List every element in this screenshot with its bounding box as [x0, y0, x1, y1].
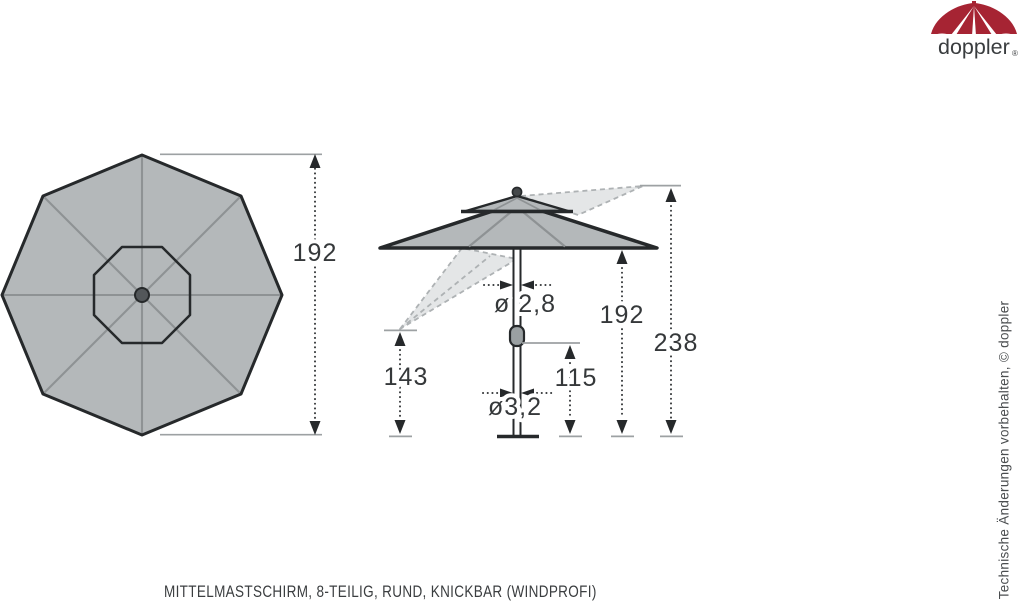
brand-name: doppler: [938, 35, 1010, 59]
doppler-logo: doppler ®: [926, 1, 1020, 59]
technical-drawing-page: 192: [0, 0, 1020, 605]
dim-label-pole-upper: ø 2,8: [494, 290, 556, 318]
dim-label-crank-height: 115: [555, 364, 598, 392]
umbrella-diagram: 192: [0, 0, 1020, 605]
dim-pole-lower: ø3,2: [483, 389, 553, 422]
dim-label-total-height: 238: [654, 329, 699, 357]
finial-ball: [512, 187, 521, 196]
top-view: [2, 155, 282, 435]
dim-label-top-diameter: 192: [293, 239, 338, 267]
dim-tilted-edge-height: 143: [384, 330, 429, 436]
mast-hub-dot: [135, 288, 149, 302]
knick-joint: [510, 326, 524, 346]
dim-label-pole-lower: ø3,2: [488, 393, 542, 421]
dim-label-tilted-edge: 143: [384, 363, 429, 391]
dim-total-height: 238: [640, 186, 698, 437]
dim-label-canopy-edge: 192: [600, 301, 645, 329]
caption: MITTELMASTSCHIRM, 8-TEILIG, RUND, KNICKB…: [164, 583, 597, 602]
registered-trademark-icon: ®: [1012, 49, 1018, 58]
dim-canopy-edge-height: 192: [600, 250, 645, 436]
copyright-note: Technische Änderungen vorbehalten, © dop…: [997, 301, 1012, 600]
